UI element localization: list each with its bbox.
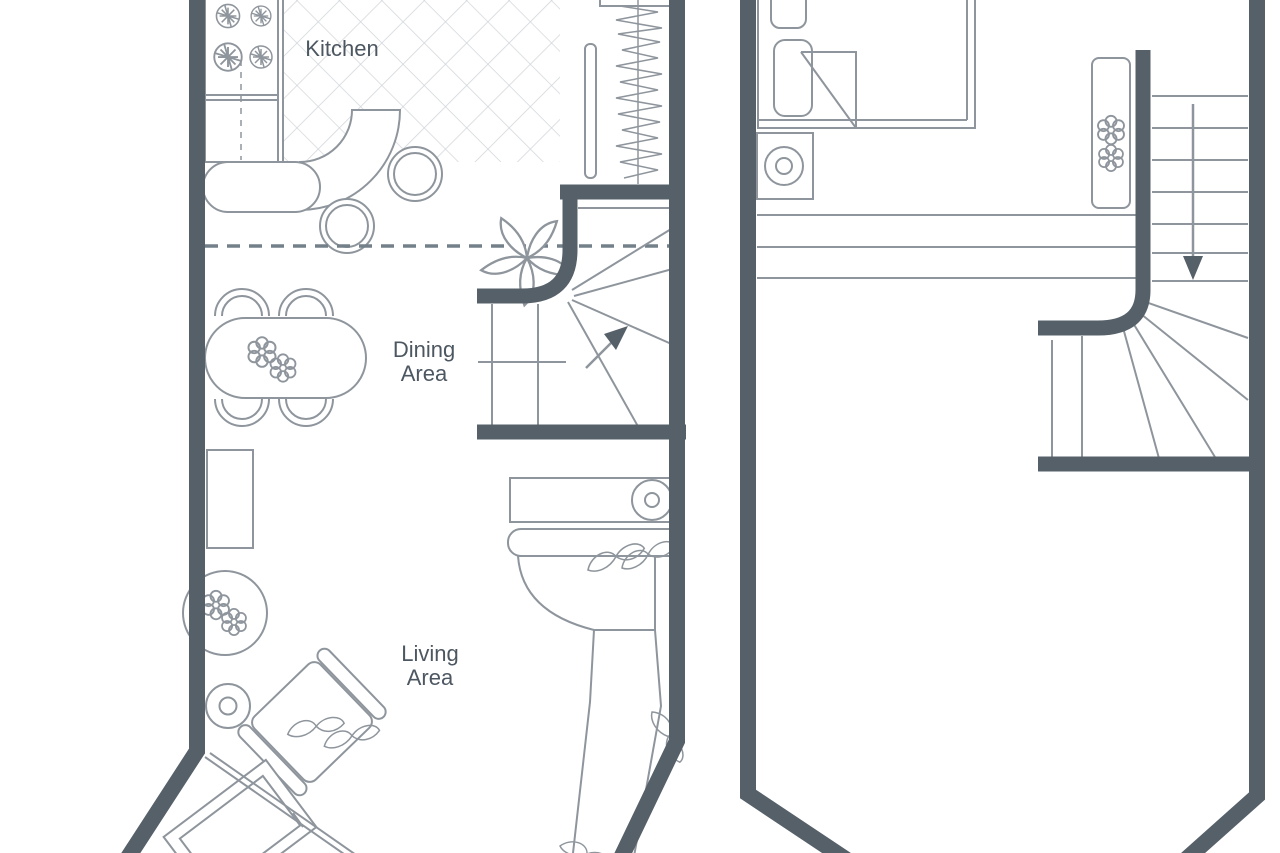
dining-table-group [205, 289, 366, 426]
closet [585, 0, 674, 184]
side-table [206, 684, 250, 728]
right-unit-upper-floor [748, 0, 1257, 853]
living-area-label-line1: Living [401, 641, 458, 666]
floor-plan-svg: Kitchen Dining Area Living Area [0, 0, 1280, 853]
media-unit [510, 478, 678, 522]
breakfast-bar-island [203, 162, 320, 212]
kitchen-label: Kitchen [305, 36, 378, 61]
kitchen-counter [205, 0, 283, 162]
sofa-back-cushion [508, 529, 683, 556]
living-area-label-line2: Area [407, 665, 454, 690]
closet-shelf [600, 0, 674, 6]
stairs-down-arrow [1183, 256, 1203, 280]
mezzanine-railing [757, 215, 1140, 278]
double-bed [758, 0, 975, 128]
nightstand [757, 133, 813, 199]
wall-segment [125, 0, 197, 853]
closet-door [585, 44, 596, 178]
dining-area-label-line2: Area [401, 361, 448, 386]
sofa [508, 529, 686, 853]
sideboard [207, 450, 253, 548]
kitchen-tile-floor [283, 0, 560, 162]
dining-table [205, 318, 366, 398]
bar-stool [388, 147, 442, 201]
left-unit-ground-floor: Kitchen Dining Area Living Area [125, 0, 686, 853]
dining-area-label-line1: Dining [393, 337, 455, 362]
shelf-with-plant [1092, 58, 1130, 208]
pillow [771, 0, 806, 28]
clothes-hangers [616, 6, 662, 178]
floor-plan-image: Kitchen Dining Area Living Area [0, 0, 1280, 853]
